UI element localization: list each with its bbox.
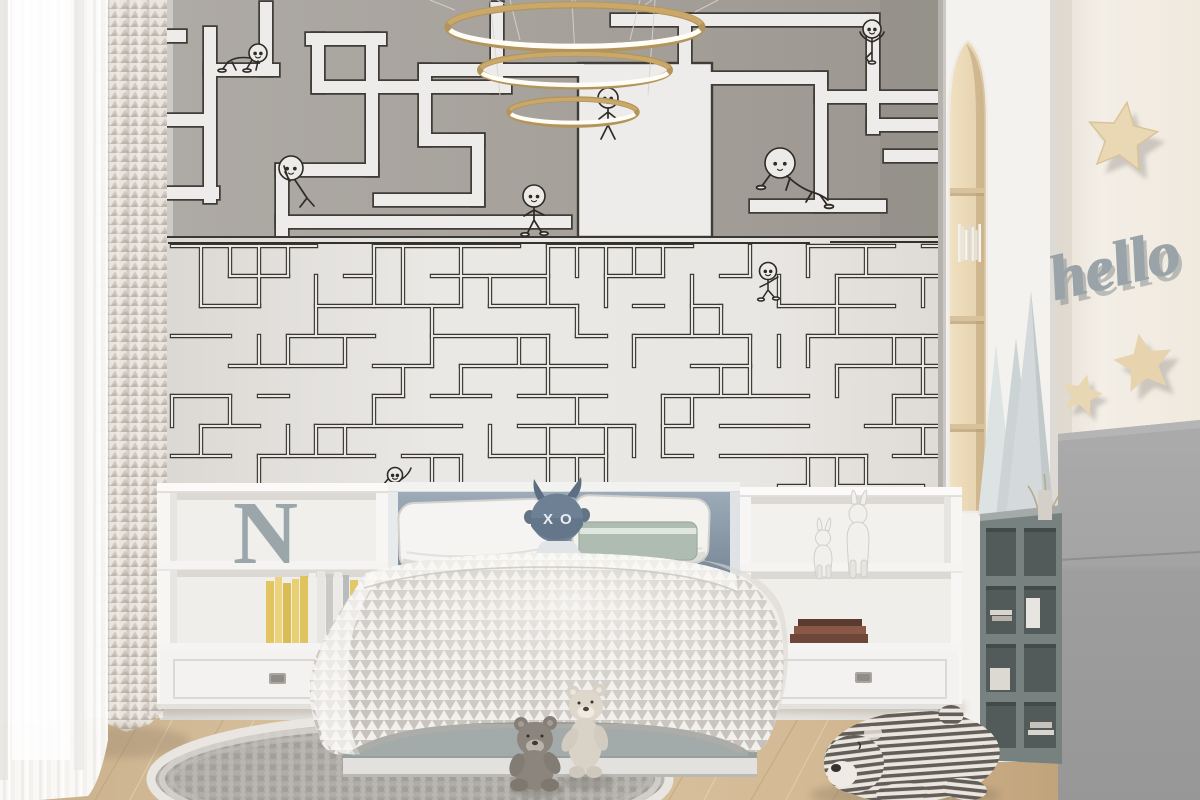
svg-text:X: X [543, 511, 553, 528]
svg-text:O: O [560, 511, 572, 528]
svg-text:N: N [233, 484, 298, 583]
